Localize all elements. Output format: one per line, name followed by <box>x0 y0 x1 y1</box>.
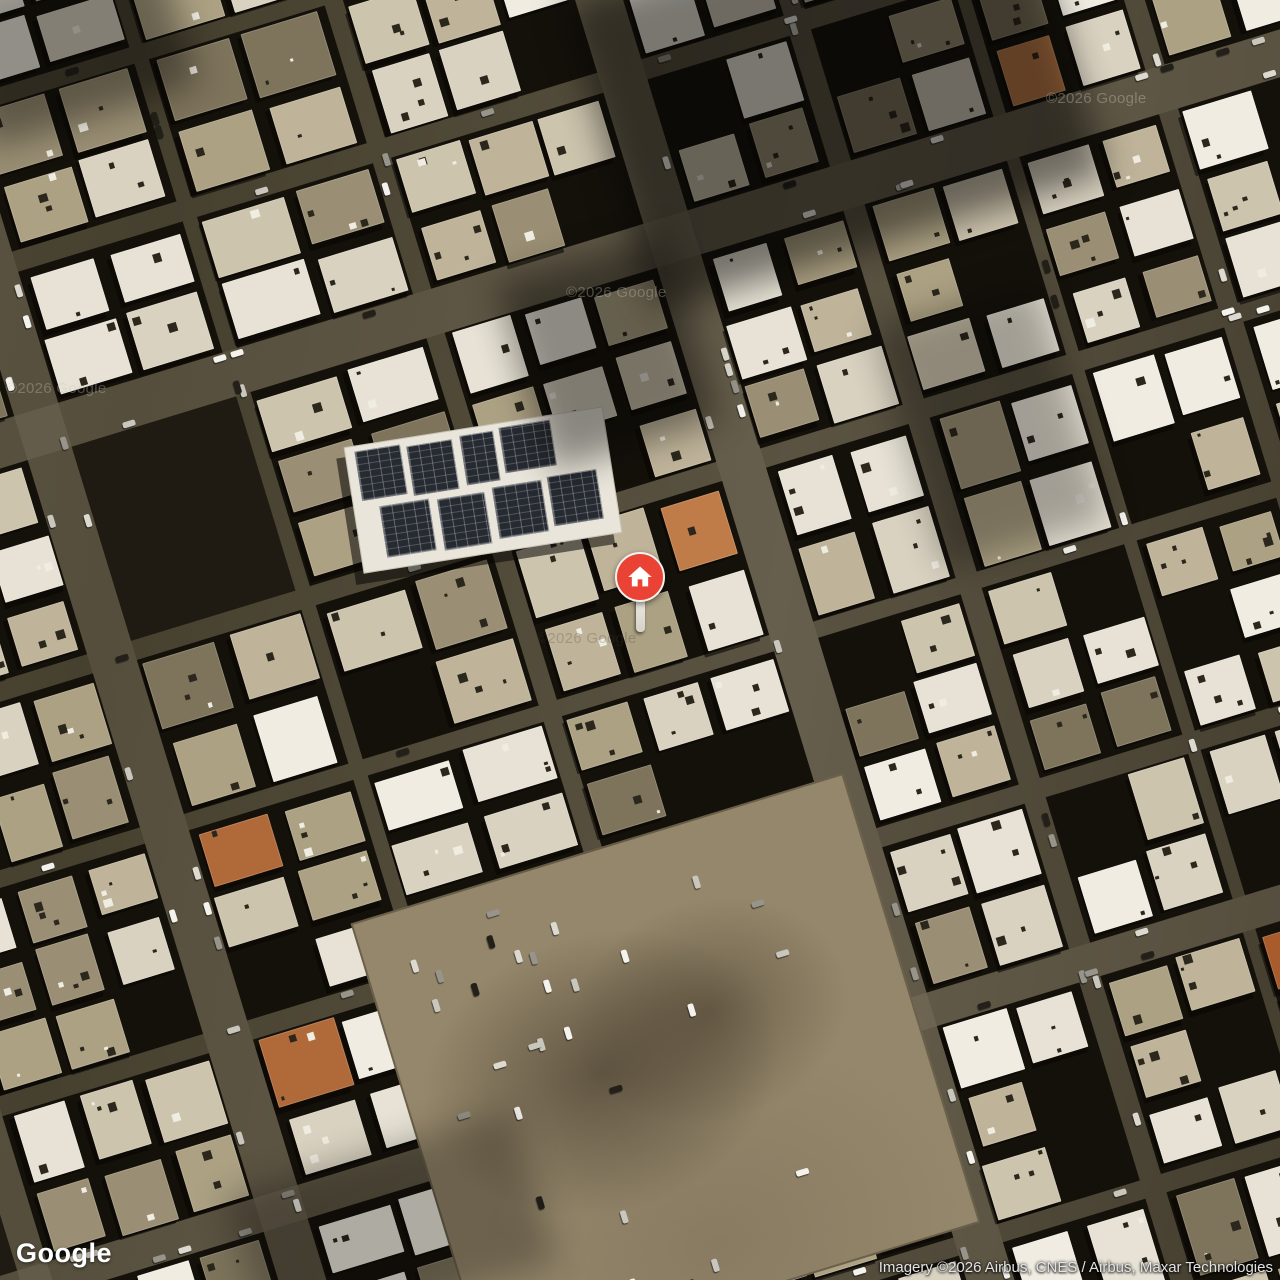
building-roof <box>463 725 558 802</box>
attribution-text: Imagery ©2026 Airbus, CNES / Airbus, Max… <box>879 1259 1273 1276</box>
building-roof <box>79 1080 152 1160</box>
building-roof <box>545 612 621 691</box>
car <box>687 1004 697 1018</box>
building-roof <box>173 723 256 806</box>
car <box>1119 512 1129 526</box>
building-roof <box>395 140 475 213</box>
building-roof <box>1190 416 1261 490</box>
car <box>1188 738 1198 752</box>
building-roof <box>1152 0 1232 55</box>
building-roof <box>913 663 992 734</box>
building-roof <box>372 53 449 133</box>
building-roof <box>4 166 88 242</box>
building-roof <box>0 1018 62 1091</box>
building-roof <box>863 748 941 821</box>
imagery-watermark: ©2026 Google <box>6 380 107 397</box>
building-roof <box>110 234 194 303</box>
city-block <box>316 551 539 759</box>
solar-panel-array <box>547 469 604 526</box>
building-roof <box>78 139 165 218</box>
building-roof <box>0 783 64 863</box>
car <box>481 108 495 118</box>
solar-panel-array <box>354 444 407 501</box>
car <box>542 979 552 993</box>
building-roof <box>107 917 174 985</box>
building-roof <box>296 169 385 245</box>
building-roof <box>347 346 439 422</box>
building-roof <box>1230 0 1280 32</box>
building-roof <box>1164 337 1240 416</box>
building-roof <box>1184 654 1257 726</box>
building-roof <box>88 853 158 915</box>
car <box>254 187 268 197</box>
building-roof <box>142 641 233 729</box>
building-roof <box>1030 703 1102 770</box>
building-roof <box>1108 965 1184 1037</box>
building-roof <box>1150 1097 1223 1164</box>
building-roof <box>1101 676 1171 747</box>
building-roof <box>726 307 807 380</box>
building-roof <box>1253 308 1280 391</box>
building-roof <box>241 11 336 98</box>
car <box>514 950 524 964</box>
building-roof <box>890 834 969 913</box>
solar-panel-array <box>379 499 437 558</box>
building-roof <box>415 559 508 650</box>
building-roof <box>7 601 78 667</box>
car <box>1048 834 1058 848</box>
building-roof <box>214 877 298 948</box>
home-icon <box>626 563 654 591</box>
car <box>1042 259 1052 273</box>
building-roof <box>982 1146 1062 1220</box>
building-roof <box>1013 638 1085 709</box>
building-roof <box>936 725 1011 797</box>
building-roof <box>270 87 358 165</box>
building-roof <box>988 572 1068 645</box>
building-roof <box>253 696 337 783</box>
building-roof <box>901 603 976 674</box>
car <box>563 1026 573 1040</box>
building-roof <box>0 961 37 1025</box>
building-roof <box>586 764 666 835</box>
building-roof <box>0 702 39 783</box>
building-roof <box>0 898 17 965</box>
building-roof <box>104 1158 179 1236</box>
building-roof <box>17 876 87 944</box>
car <box>691 875 701 889</box>
building-roof <box>0 536 63 603</box>
building-roof <box>35 934 105 1006</box>
building-roof <box>943 1008 1025 1088</box>
building-roof <box>777 454 852 535</box>
building-roof <box>421 210 497 281</box>
car <box>471 982 481 996</box>
car <box>620 950 630 964</box>
car <box>486 935 496 949</box>
building-roof <box>125 291 214 371</box>
marker-circle <box>615 552 665 602</box>
imagery-watermark: ©2026 Google <box>1046 90 1147 107</box>
building-roof <box>1146 527 1218 596</box>
car <box>1132 1112 1142 1126</box>
building-roof <box>660 490 738 571</box>
building-roof <box>52 755 130 840</box>
building-roof <box>468 121 549 197</box>
building-roof <box>1046 212 1119 276</box>
satellite-map[interactable]: ©2026 Google©2026 Google©2026 Google©202… <box>0 0 1280 1280</box>
city-block <box>1085 328 1271 525</box>
car <box>620 1209 630 1223</box>
building-roof <box>229 613 319 700</box>
building-roof <box>436 638 532 724</box>
building-roof <box>1127 757 1204 840</box>
building-roof <box>1083 617 1159 684</box>
building-roof <box>256 376 352 452</box>
car <box>1063 545 1077 555</box>
building-roof <box>969 1082 1037 1147</box>
building-roof <box>1017 991 1089 1064</box>
building-roof <box>845 690 919 756</box>
car <box>410 959 420 973</box>
car <box>457 1111 471 1121</box>
building-roof <box>566 702 643 771</box>
building-roof <box>688 569 764 651</box>
building-roof <box>1276 384 1280 468</box>
building-roof <box>1258 635 1280 703</box>
building-roof <box>56 999 130 1070</box>
car <box>493 1060 507 1070</box>
building-roof <box>30 258 110 330</box>
building-roof <box>710 659 789 731</box>
car <box>486 908 500 918</box>
building-roof <box>491 0 571 18</box>
car <box>775 949 789 959</box>
building-roof <box>1262 919 1280 989</box>
solar-panel-array <box>492 480 550 539</box>
building-roof <box>198 813 283 887</box>
solar-panel-array <box>406 439 459 496</box>
car <box>570 978 580 992</box>
building-roof <box>374 760 464 831</box>
building-roof <box>284 791 366 861</box>
car <box>1041 812 1051 826</box>
solar-panel-array <box>459 431 500 486</box>
car <box>1218 268 1228 282</box>
building-roof <box>0 623 9 691</box>
building-roof <box>1102 124 1171 188</box>
car <box>435 969 445 983</box>
car <box>710 1259 720 1273</box>
google-logo[interactable]: Google <box>16 1238 112 1269</box>
building-roof <box>1225 219 1280 297</box>
car <box>396 747 410 757</box>
building-roof <box>1218 1070 1280 1144</box>
imagery-watermark: ©2026 Google <box>566 284 667 301</box>
building-roof <box>1093 354 1175 441</box>
building-roof <box>219 0 317 13</box>
building-roof <box>13 1100 85 1183</box>
building-roof <box>348 0 429 64</box>
building-roof <box>1207 161 1280 231</box>
car <box>795 1167 809 1177</box>
building-roof <box>643 682 714 751</box>
building-roof <box>327 589 423 671</box>
car <box>381 152 391 166</box>
building-roof <box>800 288 871 352</box>
building-roof <box>439 30 521 110</box>
building-roof <box>1119 188 1194 256</box>
imagery-watermark: ©2026 Google <box>536 630 637 647</box>
building-roof <box>1073 277 1141 343</box>
building-roof <box>798 531 875 616</box>
car <box>1256 305 1270 315</box>
building-roof <box>1230 571 1280 639</box>
building-roof <box>1130 1029 1201 1098</box>
building-roof <box>0 467 39 540</box>
car <box>852 1267 866 1277</box>
building-roof <box>1142 255 1211 317</box>
car <box>609 1084 623 1094</box>
building-roof <box>957 809 1043 895</box>
building-roof <box>914 906 987 984</box>
car <box>41 862 55 872</box>
car <box>551 922 561 936</box>
building-roof <box>258 1017 354 1108</box>
building-roof <box>745 369 820 439</box>
car <box>1113 1188 1127 1198</box>
building-roof <box>1210 735 1280 814</box>
building-roof <box>1219 510 1280 571</box>
solar-panel-array <box>437 492 493 551</box>
building-roof <box>178 109 271 193</box>
car <box>529 950 539 964</box>
building-roof <box>1077 859 1153 933</box>
city-block <box>1100 933 1280 1175</box>
car <box>513 1106 523 1120</box>
building-roof <box>1183 90 1269 169</box>
building-roof <box>1146 833 1223 911</box>
car <box>751 898 765 908</box>
building-roof <box>392 822 484 896</box>
building-roof <box>297 850 381 921</box>
building-roof <box>981 884 1063 966</box>
building-roof <box>1065 9 1141 85</box>
car <box>432 998 442 1012</box>
